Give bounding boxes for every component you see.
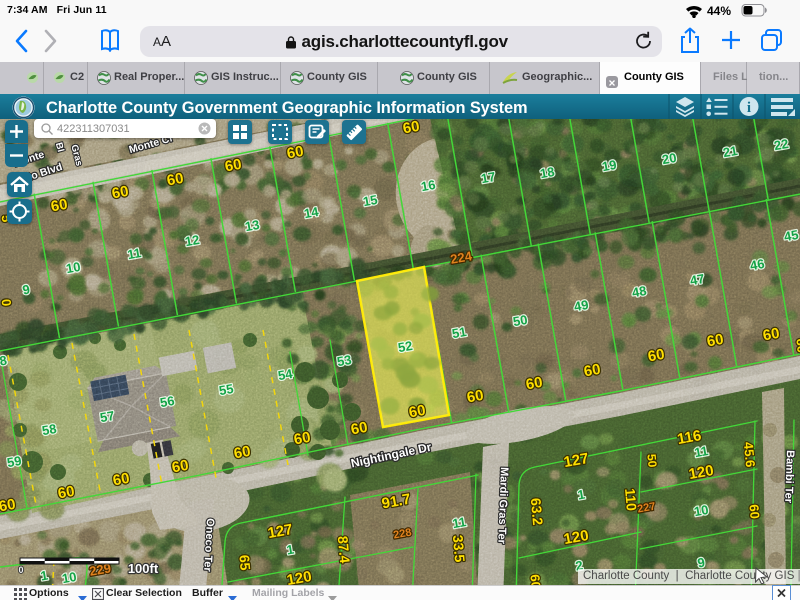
svg-text:50: 50: [512, 312, 529, 329]
svg-text:21: 21: [722, 143, 739, 160]
svg-text:i: i: [747, 100, 751, 116]
svg-text:46: 46: [749, 256, 766, 273]
svg-text:10: 10: [65, 259, 82, 276]
svg-text:18: 18: [539, 164, 556, 181]
svg-text:60: 60: [583, 361, 602, 381]
svg-text:57: 57: [99, 408, 116, 425]
svg-text:45.6: 45.6: [741, 441, 758, 468]
svg-text:52: 52: [397, 338, 414, 355]
svg-text:60: 60: [111, 183, 130, 203]
svg-text:60: 60: [402, 119, 421, 137]
svg-text:65: 65: [236, 554, 253, 571]
svg-text:19: 19: [601, 157, 618, 174]
svg-text:12: 12: [184, 232, 201, 249]
svg-text:60: 60: [746, 504, 762, 520]
svg-text:60: 60: [647, 346, 666, 366]
svg-text:17: 17: [480, 169, 497, 186]
svg-text:60: 60: [286, 143, 305, 163]
svg-text:53: 53: [336, 352, 353, 369]
svg-text:60: 60: [466, 387, 485, 407]
svg-text:15: 15: [362, 192, 379, 209]
svg-text:51: 51: [451, 324, 468, 341]
svg-text:60: 60: [762, 325, 781, 345]
svg-text:60: 60: [706, 331, 725, 351]
svg-text:100ft: 100ft: [128, 561, 159, 576]
svg-text:33.5: 33.5: [450, 534, 468, 563]
svg-text:10: 10: [693, 502, 710, 519]
svg-text:60: 60: [350, 419, 369, 439]
svg-text:16: 16: [420, 177, 437, 194]
svg-text:60: 60: [233, 443, 252, 463]
svg-text:60: 60: [0, 496, 17, 516]
svg-text:49: 49: [573, 297, 590, 314]
svg-text:60: 60: [171, 457, 190, 477]
svg-text:10: 10: [61, 569, 78, 585]
svg-text:44%: 44%: [707, 4, 731, 18]
svg-text:0: 0: [0, 298, 14, 307]
svg-text:11: 11: [693, 443, 709, 460]
svg-text:59: 59: [6, 453, 23, 470]
svg-text:0: 0: [18, 565, 23, 575]
svg-text:56: 56: [159, 393, 176, 410]
svg-text:60: 60: [408, 402, 427, 422]
svg-text:55: 55: [218, 381, 235, 398]
svg-text:13: 13: [244, 217, 261, 234]
svg-text:20: 20: [661, 150, 678, 167]
svg-text:87.4: 87.4: [335, 535, 353, 564]
svg-text:60: 60: [293, 429, 312, 449]
svg-text:47: 47: [689, 271, 706, 288]
svg-text:58: 58: [41, 421, 58, 438]
svg-text:48: 48: [631, 283, 648, 300]
svg-text:50: 50: [644, 453, 659, 468]
svg-text:22: 22: [773, 136, 790, 153]
svg-text:45: 45: [783, 227, 800, 244]
svg-text:60: 60: [112, 470, 131, 490]
svg-text:60: 60: [166, 170, 185, 190]
svg-text:60: 60: [50, 196, 69, 216]
svg-text:11: 11: [451, 514, 467, 531]
svg-text:60: 60: [224, 156, 243, 176]
svg-text:60: 60: [57, 483, 76, 503]
svg-text:63.2: 63.2: [528, 497, 546, 526]
svg-text:11: 11: [126, 245, 142, 262]
svg-text:Bambi Ter: Bambi Ter: [782, 450, 796, 504]
svg-text:60: 60: [525, 374, 544, 394]
svg-text:60: 60: [527, 574, 543, 585]
